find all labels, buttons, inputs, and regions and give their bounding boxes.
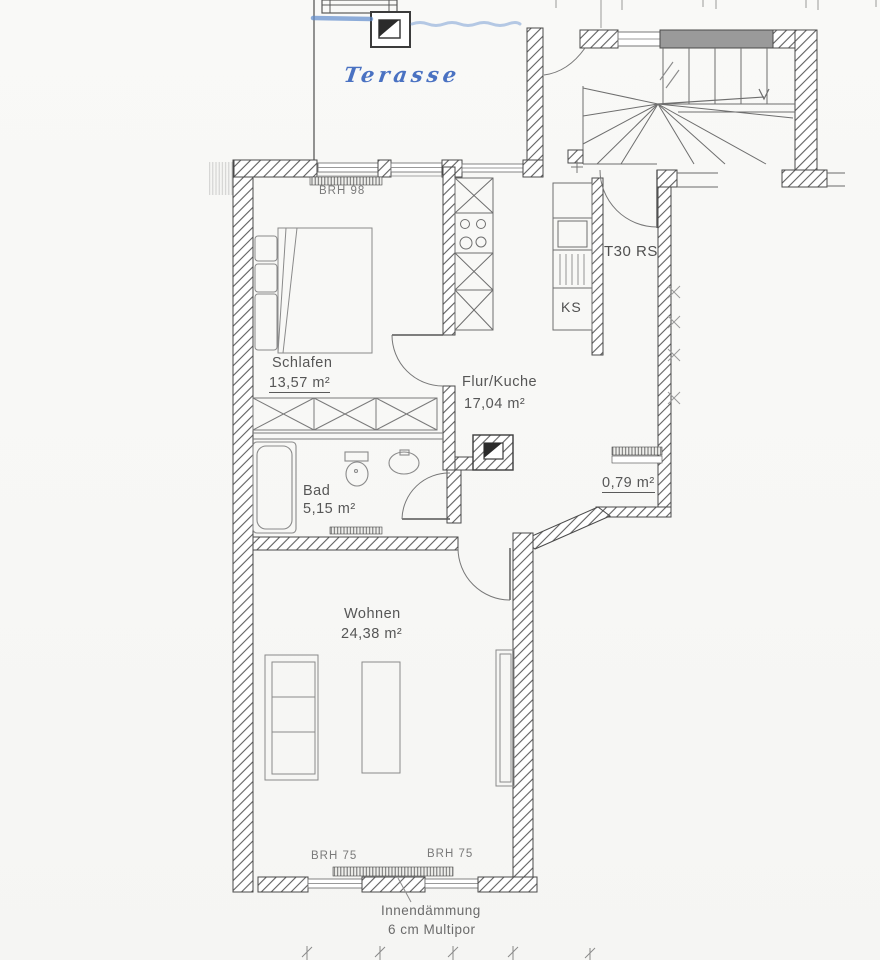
bath-fixtures	[253, 442, 419, 533]
washbasin	[389, 450, 419, 474]
bath-radiator	[330, 527, 382, 534]
table	[362, 662, 400, 773]
dishwasher-lines	[560, 254, 584, 285]
niche-radiator	[612, 456, 662, 463]
window-sill-label-bottom-left: BRH 75	[311, 850, 357, 862]
bedroom-furniture	[253, 228, 443, 439]
sink-unit	[558, 221, 587, 247]
bath-area: 5,15 m²	[303, 501, 356, 517]
stair-direction-arrow	[658, 89, 769, 104]
window-sill-label-top: BRH 98	[319, 185, 365, 197]
apartment-walls	[209, 160, 718, 892]
dimension-ticks-bottom	[302, 946, 595, 960]
floorplan-drawing	[0, 0, 880, 960]
left-wall	[233, 160, 253, 892]
sofa	[265, 655, 318, 780]
bathtub	[253, 442, 296, 533]
kitchen-bedroom-wall	[443, 167, 455, 335]
living-furniture	[265, 650, 514, 786]
hall-kitchen-name: Flur/Kuche	[462, 374, 537, 390]
insulation-strips	[310, 177, 662, 876]
fridge-label: KS	[561, 299, 582, 315]
living-name: Wohnen	[344, 606, 401, 622]
bath-name: Bad	[303, 483, 330, 499]
bedroom-door	[392, 335, 443, 386]
stove-burners	[460, 220, 486, 250]
living-right-wall	[513, 533, 533, 892]
window-sill-label-bottom-right: BRH 75	[427, 848, 473, 860]
blue-highlighter-strokes	[313, 18, 520, 26]
sideboard	[496, 650, 514, 786]
stair-newel	[568, 150, 583, 163]
stairwell	[527, 28, 845, 187]
inner-insulation-strip	[333, 867, 453, 876]
niche-area-label: 0,79 m²	[602, 475, 655, 493]
hall-kitchen-area: 17,04 m²	[464, 396, 525, 412]
wardrobe	[253, 398, 443, 439]
chimney-shaft	[473, 435, 513, 470]
hall-right-wall	[658, 187, 671, 515]
insulation-note-line1: Innendämmung	[381, 903, 481, 918]
fire-door-label: T30 RS	[604, 243, 658, 260]
bath-door-pier	[447, 470, 461, 523]
living-door	[458, 548, 510, 600]
stairwell-right-wall	[795, 30, 817, 175]
terrace-door-arc	[544, 48, 585, 75]
angled-wall	[523, 507, 610, 549]
bed	[255, 228, 372, 353]
toilet	[345, 452, 368, 486]
kitchen-right-wall	[592, 178, 603, 355]
terrace-column	[371, 12, 410, 47]
stairwell-left-wall	[527, 28, 543, 170]
bedroom-name: Schlafen	[272, 355, 332, 371]
terrace-label: Terasse	[342, 62, 462, 87]
stairwell-gray-wall	[660, 30, 773, 48]
exterior-insulation-faint	[209, 162, 234, 195]
dimension-ticks-top	[556, 0, 876, 28]
bedroom-area: 13,57 m²	[269, 375, 330, 393]
entry-door-t30	[600, 170, 657, 228]
insulation-note-line2: 6 cm Multipor	[388, 922, 476, 937]
living-area: 24,38 m²	[341, 626, 402, 642]
stairs	[583, 48, 795, 164]
floorplan-canvas: Terasse BRH 98 T30 RS KS Schlafen 13,57 …	[0, 0, 880, 960]
bath-door	[402, 473, 450, 519]
bath-living-wall	[253, 537, 458, 550]
